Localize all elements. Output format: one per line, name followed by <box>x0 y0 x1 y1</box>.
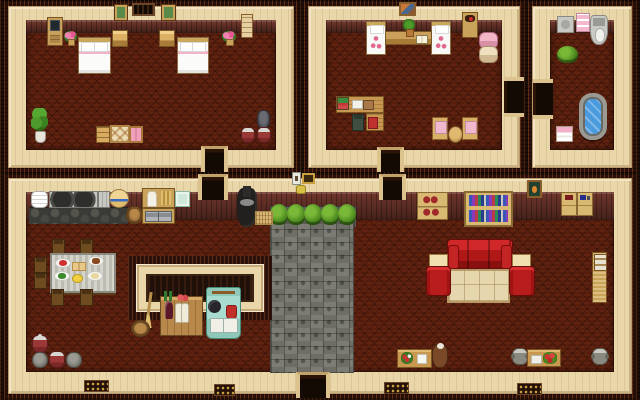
side-desk-blue[interactable] <box>577 192 593 216</box>
wall-painting-study <box>399 2 416 16</box>
plant-on-table <box>402 19 416 39</box>
dining-chair-bottom-1[interactable] <box>51 289 64 306</box>
pink-futon <box>129 126 143 143</box>
potted-plant-bedroom <box>31 108 48 143</box>
small-gold-frame <box>302 173 315 184</box>
frying-pan <box>208 300 221 313</box>
red-couch[interactable] <box>447 239 513 269</box>
hedge-4 <box>321 204 339 225</box>
hedge-2 <box>287 204 305 225</box>
door-bathroom-west[interactable] <box>533 79 553 119</box>
flower-pot-left <box>64 31 77 46</box>
floor-vent-3 <box>384 382 409 394</box>
double-bed-left[interactable] <box>78 37 111 74</box>
towel-cabinet <box>576 13 590 32</box>
gray-jug-1 <box>32 352 48 368</box>
kitchen-cabinet[interactable] <box>142 188 175 208</box>
double-bed-right[interactable] <box>177 37 209 74</box>
plate-salad <box>54 271 70 281</box>
cushion-chair-right[interactable] <box>462 117 478 140</box>
flour-sacks <box>175 303 189 321</box>
flower-pot-right <box>222 31 236 46</box>
cat-portrait <box>527 180 542 198</box>
flower-table[interactable] <box>397 349 432 368</box>
gray-pot-1 <box>512 348 528 365</box>
open-book <box>416 35 428 44</box>
red-lidded-pot <box>32 335 48 353</box>
nightstand-right[interactable] <box>159 30 175 47</box>
tall-cabinet[interactable] <box>592 252 607 303</box>
hedge-5 <box>338 204 356 225</box>
bread-board <box>72 262 86 271</box>
clipboard <box>363 100 374 110</box>
door-study-south[interactable] <box>377 147 404 172</box>
barrel[interactable] <box>126 206 143 224</box>
towel-stack <box>556 126 573 142</box>
computer-desk[interactable] <box>47 17 63 46</box>
hedge-3 <box>304 204 322 225</box>
side-desk-red[interactable] <box>561 192 577 216</box>
toilet[interactable] <box>590 15 608 45</box>
round-table[interactable] <box>448 126 463 143</box>
door-study-east[interactable] <box>504 77 524 117</box>
red-pot-kitchen <box>49 351 65 368</box>
bookshelf[interactable] <box>464 191 513 227</box>
farmhouse-scene <box>0 0 640 400</box>
doormat <box>255 211 273 225</box>
dining-chair-left-2[interactable] <box>34 273 47 289</box>
floor-vent-2 <box>214 384 235 396</box>
cushion-chair-left[interactable] <box>432 117 448 140</box>
red-book <box>368 117 378 129</box>
wood-stove[interactable] <box>237 188 257 227</box>
single-bed-right[interactable] <box>431 21 451 55</box>
bathroom-plant <box>557 46 578 63</box>
kitchen-stone-floor <box>29 207 128 224</box>
straw-hat-basin <box>109 189 129 208</box>
red-kettle <box>226 305 237 319</box>
hanging-meat <box>176 293 189 303</box>
quilt-rug <box>110 125 130 143</box>
nightstand-left[interactable] <box>112 30 128 47</box>
jar-shelf[interactable] <box>417 192 448 220</box>
berry-table[interactable] <box>527 349 561 367</box>
red-pot-2 <box>257 127 271 143</box>
stone-path <box>270 224 354 373</box>
door-main-northwest[interactable] <box>198 174 228 200</box>
rolled-futons <box>479 32 496 63</box>
gray-pot-2 <box>592 348 608 365</box>
gray-jug-2 <box>66 352 82 368</box>
plate-pie <box>87 271 103 281</box>
lemon-bowl <box>72 274 83 283</box>
single-bed-left[interactable] <box>366 21 386 55</box>
kitchen-stove[interactable] <box>49 191 98 208</box>
armchair-right[interactable] <box>509 266 535 296</box>
wall-scroll <box>241 14 253 38</box>
plate-tomatoes <box>55 258 71 268</box>
bathtub[interactable] <box>579 93 607 140</box>
dining-chair-bottom-2[interactable] <box>80 289 93 306</box>
small-yellow-basket <box>296 185 306 194</box>
kitchen-drawers[interactable] <box>142 208 175 224</box>
plate-stack <box>31 191 48 208</box>
door-main-north[interactable] <box>379 174 406 200</box>
desk-chair[interactable] <box>352 114 364 131</box>
furniture-layer <box>0 0 640 400</box>
door-main-south[interactable] <box>296 372 330 398</box>
wine-bottle <box>165 301 173 319</box>
wall-picture-right <box>162 5 175 20</box>
plate-roast <box>88 256 104 266</box>
bathroom-sink[interactable] <box>557 16 574 33</box>
green-bottles <box>162 291 174 301</box>
small-cabinet[interactable] <box>462 12 478 38</box>
teapot-jar <box>432 344 448 368</box>
door-bedroom-south[interactable] <box>201 146 228 172</box>
stove-drawers <box>210 318 238 331</box>
dresser[interactable] <box>96 126 110 143</box>
red-pot-1 <box>241 127 255 143</box>
round-basket <box>131 320 150 337</box>
wall-picture-left <box>115 5 127 20</box>
living-room-rug <box>447 269 510 303</box>
light-switch <box>292 172 301 185</box>
floor-vent-4 <box>517 383 542 395</box>
floor-vent-1 <box>84 380 109 392</box>
green-tile <box>175 191 190 207</box>
dining-chair-left-1[interactable] <box>34 257 47 273</box>
armchair-left[interactable] <box>426 266 451 296</box>
books-on-desk <box>337 97 349 110</box>
wall-vent-window <box>132 3 155 16</box>
papers <box>352 100 363 109</box>
